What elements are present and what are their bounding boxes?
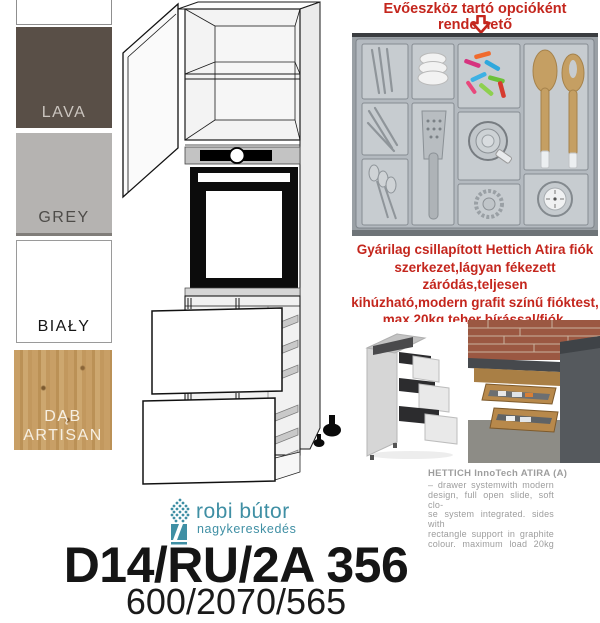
swatch-bialy: BIAŁY	[16, 240, 112, 343]
drawer-front-upper	[152, 308, 282, 394]
swatch-label-dab-artisan: DĄB ARTISAN	[14, 408, 112, 450]
swatch-dab-artisan: DĄB ARTISAN	[14, 350, 112, 450]
cutlery-tray-photo	[352, 33, 598, 236]
drawer-cabinet-render	[353, 322, 467, 462]
swatch-grey: GREY	[16, 133, 112, 236]
cabinet-upper-shelves	[185, 9, 300, 145]
swatch-lava: LAVA	[16, 27, 112, 128]
drawer-front-lower	[143, 398, 275, 484]
oven-door-window	[206, 191, 282, 278]
drawer-note: Gyárilag csillapított Hettich Atira fiók…	[348, 241, 600, 329]
brand-tagline: nagykereskedés	[197, 522, 296, 536]
swatch-label-lava: LAVA	[16, 104, 112, 128]
cabinet-base	[275, 452, 300, 480]
timer-icon	[538, 182, 572, 216]
swatch-label-grey: GREY	[16, 209, 112, 233]
oven-knob	[230, 148, 245, 163]
kitchen-drawers-photo	[468, 320, 600, 463]
hettich-info: HETTICH InnoTech ATIRA (A) – drawer syst…	[428, 468, 554, 550]
brand-name: robi bútor	[196, 500, 290, 524]
cabinet-open-door	[123, 4, 178, 197]
egg-cups-icon	[418, 53, 448, 85]
oven-control-panel	[185, 147, 300, 164]
oven	[185, 167, 300, 296]
swatch-label-bialy: BIAŁY	[17, 318, 111, 342]
swatch-partial	[16, 0, 112, 25]
down-arrow-icon	[471, 15, 491, 34]
cabinet-side-panel	[300, 2, 320, 449]
cabinet-diagram	[118, 0, 353, 485]
oven-handle	[198, 173, 290, 182]
hettich-info-body: – drawer systemwith modern design, full …	[428, 481, 554, 550]
product-dimensions: 600/2070/565	[126, 581, 346, 623]
hettich-info-title: HETTICH InnoTech ATIRA (A)	[428, 468, 554, 479]
